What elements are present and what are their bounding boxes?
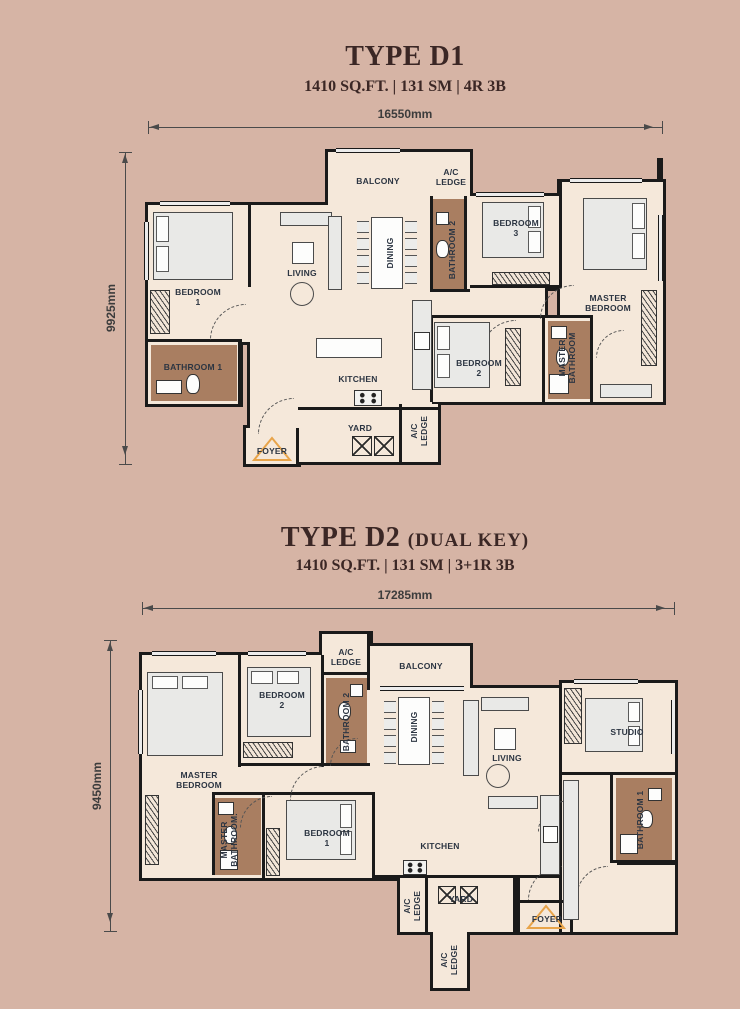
sofa [481,697,529,711]
d2-room-label-kitchen: KITCHEN [420,841,459,851]
stove-icon [354,390,382,406]
d1-wall [542,315,545,402]
d1-wall [399,404,402,462]
d2-room-label-ac-ledge: A/C LEDGE [331,647,361,667]
d2-height-dimension: 9450mm [90,762,104,810]
window [152,651,216,656]
d1-room-label-ac-ledge: A/C LEDGE [436,167,466,187]
coffee-table [292,242,314,264]
d1-parapet-wall [657,158,663,184]
window [248,651,306,656]
dim-tick [104,931,117,932]
d1-room-label-master-bedroom: MASTER BEDROOM [585,293,631,313]
plan-d1-title: TYPE D1 [345,41,464,73]
d2-room-label-balcony: BALCONY [399,661,442,671]
d2-room-label-bedroom1: BEDROOM 1 [304,828,350,848]
d1-height-dimension: 9925mm [104,284,118,332]
wardrobe [505,328,521,386]
d2-width-dimension-line [142,608,675,609]
d1-wall [470,285,562,288]
d1-height-dimension-line [125,152,126,465]
dim-arrow-left-icon [150,124,159,130]
d2-height-dimension-line [110,640,111,932]
kitchen-island [316,338,382,358]
window [476,192,544,197]
dining-chairs [432,701,444,765]
plan-d2-title: TYPE D2 (DUAL KEY) [281,522,529,554]
bathroom-sink [156,380,182,394]
d2-room-label-bedroom2: BEDROOM 2 [259,690,305,710]
dining-chairs [405,221,417,289]
d2-room-label-bathroom2: BATHROOM 2 [341,693,351,752]
window [138,690,143,754]
d2-room-label-dining: DINING [409,712,419,743]
d2-wall [375,875,562,878]
bed-pillow [152,676,178,689]
d1-wall [298,407,438,410]
d1-room-label-balcony: BALCONY [356,176,399,186]
d2-room-label-master-bathroom: MASTER BATHROOM. [219,813,239,867]
d2-wall [367,634,370,690]
d1-wall [296,428,299,464]
plan-d2-title-text: TYPE D2 [281,522,400,553]
d2-wall [372,795,375,878]
plant [290,282,314,306]
d2-wall [559,683,562,793]
d1-wall [430,289,470,292]
bed-pillow [632,233,645,259]
window [144,222,149,280]
dim-tick [674,602,675,615]
d1-room-label-bathroom2: BATHROOM 2 [447,221,457,280]
wardrobe [641,290,657,366]
d1-room-label-master-bathroom: MASTER BATHROOM [557,332,577,383]
dim-arrow-up-icon [107,642,113,651]
window [570,178,642,183]
dresser [600,384,652,398]
d2-width-dimension: 17285mm [378,588,433,602]
d2-room-label-yard: YARD [449,894,473,904]
dim-tick [142,602,143,615]
d2-wall [212,795,215,875]
d1-room-label-yard: YARD [348,423,372,433]
d2-wall [322,672,370,675]
ac-unit-icon [374,436,394,456]
d2-room-label-living: LIVING [492,753,522,763]
bed-pillow [251,671,273,684]
bed-pillow [182,676,208,689]
kitchen-counter [488,796,538,809]
sofa [328,216,342,290]
d1-wall [559,182,562,285]
bed-pillow [156,246,169,272]
dim-arrow-down-icon [122,446,128,455]
d1-width-dimension: 16550mm [378,107,433,121]
bed-pillow [340,804,352,828]
wardrobe [492,272,550,285]
window [380,686,464,691]
window [574,679,638,684]
window [658,215,663,281]
dim-arrow-up-icon [122,154,128,163]
d2-wall [513,878,516,932]
kitchen-sink [543,826,558,843]
bed-pillow [628,702,640,722]
d1-room-label-ac-ledge2: A/C LEDGE [409,416,429,446]
d1-width-dimension-line [148,127,663,128]
d1-room-label-living: LIVING [287,268,317,278]
plan-d1-title-text: TYPE D1 [345,41,464,72]
d2-wall [562,772,675,775]
d2-wall [238,655,241,767]
sofa [463,700,479,776]
d1-room-label-bathroom1: BATHROOM 1 [164,362,223,372]
window [671,700,676,754]
d1-room-label-bedroom3: BEDROOM 3 [493,218,539,238]
d1-room-label-dining: DINING [385,238,395,269]
wardrobe [150,290,170,334]
plan-d2-title-suffix: (DUAL KEY) [408,530,529,551]
dim-tick [119,152,132,153]
d1-room-label-bedroom1: BEDROOM 1 [175,287,221,307]
dim-arrow-down-icon [107,913,113,922]
d1-wall [248,205,251,287]
dim-tick [148,121,149,134]
stove-icon [403,860,427,875]
bed-pillow [632,203,645,229]
d2-wall [425,878,428,932]
d2-wall [610,775,613,863]
d2-room-label-ac-ledge3: A/C LEDGE [439,945,459,975]
d2-room-label-studio: STUDIO [610,727,643,737]
bed-pillow [437,354,450,378]
wardrobe [145,795,159,865]
coffee-table [494,728,516,750]
bed-pillow [156,216,169,242]
d1-room-label-foyer: FOYER [257,446,287,456]
window [160,201,230,206]
dim-tick [662,121,663,134]
d2-room-label-foyer: FOYER [532,914,562,924]
bathroom-sink [350,684,363,697]
bathroom-sink [648,788,662,801]
d1-room-label-bedroom2: BEDROOM 2 [456,358,502,378]
plan-d1-spec: 1410 SQ.FT. | 131 SM | 4R 3B [304,78,506,96]
kitchen-sink [414,332,430,350]
wardrobe [266,828,280,876]
sofa [280,212,332,226]
corridor-counter [563,780,579,920]
dim-arrow-right-icon [656,605,665,611]
floorplan-sheet: TYPE D1 1410 SQ.FT. | 131 SM | 4R 3B 165… [0,0,740,1009]
dim-tick [119,464,132,465]
d2-room-label-bathroom1: BATHROOM 1 [635,791,645,850]
wardrobe [564,688,582,744]
dim-tick [104,640,117,641]
wardrobe [243,742,293,758]
plant [486,764,510,788]
d1-wall [430,196,433,292]
toilet [186,374,200,394]
dining-chairs [357,221,369,289]
plan-d2-spec: 1410 SQ.FT. | 131 SM | 3+1R 3B [296,557,515,575]
d2-room-label-master-bedroom: MASTER BEDROOM [176,770,222,790]
d2-wall [613,860,675,863]
d1-wall [590,315,593,402]
window [336,148,400,153]
dim-arrow-left-icon [144,605,153,611]
d1-room-label-kitchen: KITCHEN [338,374,377,384]
dim-arrow-right-icon [644,124,653,130]
bed-pillow [437,326,450,350]
d2-room-label-ac-ledge2: A/C LEDGE [402,891,422,921]
d1-wall [238,339,241,404]
dining-chairs [384,701,396,765]
bed-pillow [277,671,299,684]
ac-unit-icon [352,436,372,456]
d1-wall [464,196,467,292]
